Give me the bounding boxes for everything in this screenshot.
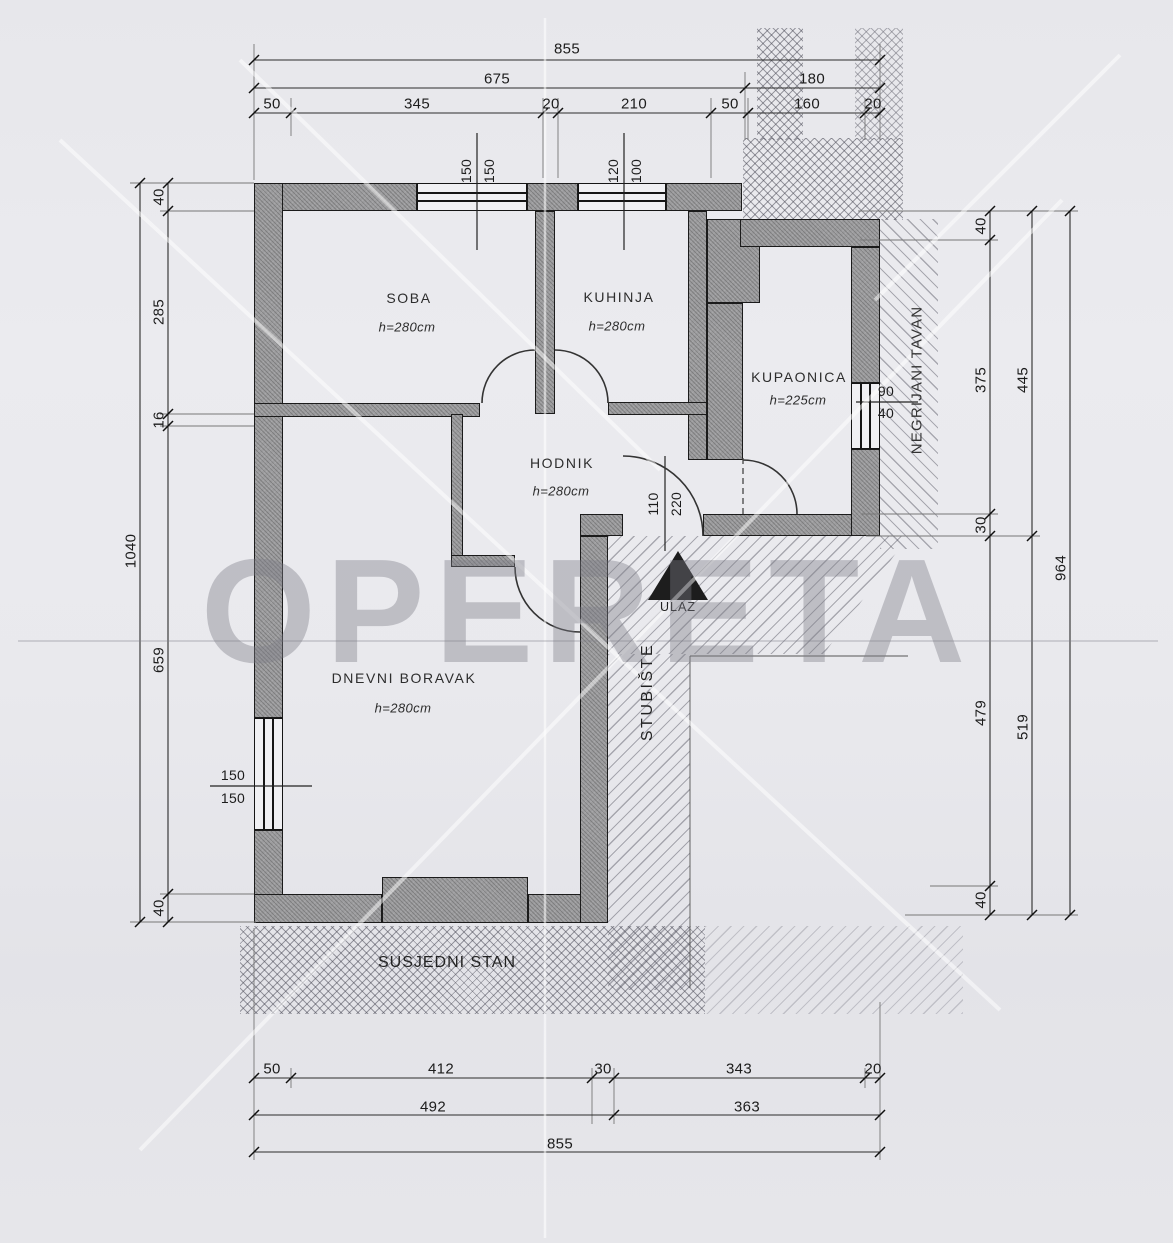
dimension-lines: [140, 60, 1070, 1152]
extension-lines: [130, 44, 1078, 1160]
dim-right-in-3: 479: [973, 700, 990, 726]
dim-bot-in-0: 50: [263, 1061, 280, 1078]
dim-right-in-4: 40: [973, 891, 990, 908]
dim-top-in-0: 50: [263, 96, 280, 113]
dim-left-in-1: 285: [151, 299, 168, 325]
dim-right-outer: 964: [1053, 555, 1070, 581]
dim-top-in-3: 210: [621, 96, 647, 113]
dim-top-mid-1: 180: [799, 71, 825, 88]
dim-bot-in-2: 30: [594, 1061, 611, 1078]
dim-top-in-4: 50: [721, 96, 738, 113]
room-height-hodnik: h=280cm: [533, 484, 590, 499]
door-arc-dnevni: [515, 567, 580, 632]
area-label-entrance: ULAZ: [660, 600, 696, 614]
room-height-kupaonica: h=225cm: [770, 393, 827, 408]
door-arc-bath: [743, 460, 797, 514]
dim-bot-in-1: 412: [428, 1061, 454, 1078]
room-label-soba: SOBA: [386, 290, 431, 306]
dim-bot-in-4: 20: [864, 1061, 881, 1078]
dim-bot-total: 855: [547, 1136, 573, 1153]
dim-left-in-4: 40: [151, 899, 168, 916]
dim-right-mid-1: 519: [1015, 714, 1032, 740]
room-label-dnevni: DNEVNI BORAVAK: [332, 670, 477, 686]
area-label-attic: NEGRIJANI TAVAN: [909, 306, 926, 455]
dim-right-in-0: 40: [973, 217, 990, 234]
room-label-kupaonica: KUPAONICA: [751, 369, 847, 385]
window-dnevni-height: 150: [221, 790, 245, 806]
dim-bot-mid-0: 492: [420, 1099, 446, 1116]
window-kuhinja-width: 120: [605, 159, 621, 183]
window-kupaonica-height: 40: [878, 405, 894, 421]
window-soba-height: 150: [481, 159, 497, 183]
dim-left-in-0: 40: [151, 188, 168, 205]
room-height-dnevni: h=280cm: [375, 701, 432, 716]
room-label-hodnik: HODNIK: [530, 455, 594, 471]
dim-bot-in-3: 343: [726, 1061, 752, 1078]
dim-left-outer: 1040: [123, 534, 140, 569]
dim-right-in-1: 375: [973, 367, 990, 393]
dim-top-in-5: 160: [794, 96, 820, 113]
area-label-neighbor-flat: SUSJEDNI STAN: [378, 954, 516, 972]
dim-bot-mid-1: 363: [734, 1099, 760, 1116]
room-height-kuhinja: h=280cm: [589, 319, 646, 334]
dim-right-in-2: 30: [973, 516, 990, 533]
room-label-kuhinja: KUHINJA: [583, 289, 654, 305]
door-arcs: [482, 350, 797, 632]
dim-left-in-2: 16: [151, 411, 168, 428]
dim-left-in-3: 659: [151, 647, 168, 673]
dim-top-in-2: 20: [542, 96, 559, 113]
dim-top-in-1: 345: [404, 96, 430, 113]
dim-top-mid-0: 675: [484, 71, 510, 88]
entry-door-height: 220: [668, 492, 684, 516]
window-kuhinja-height: 100: [628, 159, 644, 183]
window-kupaonica-width: 90: [878, 383, 894, 399]
tick-marks: [135, 55, 1075, 1157]
fold-streaks: [60, 55, 1120, 1150]
floor-plan-scan: 855 675 180 50 345 20 210 50 160 20 50 4…: [0, 0, 1173, 1243]
entry-door-width: 110: [645, 492, 661, 515]
dim-top-in-6: 20: [864, 96, 881, 113]
dim-right-mid-0: 445: [1015, 367, 1032, 393]
door-arc-entry: [623, 456, 703, 536]
area-label-staircase: STUBIŠTE: [639, 643, 657, 741]
window-dnevni-width: 150: [221, 767, 245, 783]
door-arc-soba: [482, 350, 535, 403]
window-soba-width: 150: [458, 159, 474, 183]
room-height-soba: h=280cm: [379, 320, 436, 335]
dim-top-total: 855: [554, 41, 580, 58]
plan-linework: [0, 0, 1173, 1243]
